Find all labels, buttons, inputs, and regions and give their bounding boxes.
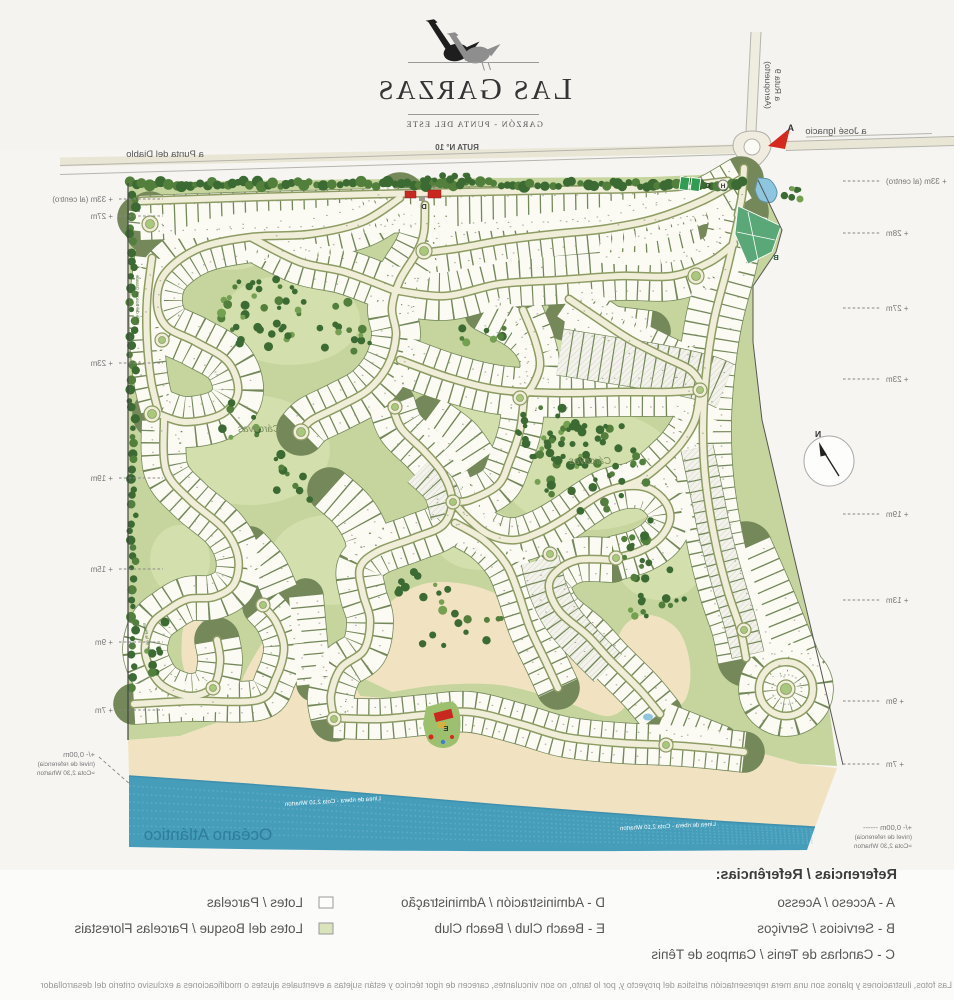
svg-text:+ 13m: + 13m xyxy=(886,596,909,605)
svg-text:E: E xyxy=(443,724,448,733)
svg-text:+ 23m: + 23m xyxy=(90,359,113,368)
svg-text:+ 28m: + 28m xyxy=(886,229,909,238)
svg-text:+ 9m: + 9m xyxy=(886,697,904,706)
svg-text:Océano Atlántico: Océano Atlántico xyxy=(144,825,273,844)
svg-text:+ 33m (al centro): + 33m (al centro) xyxy=(52,195,113,204)
svg-text:+ 27m: + 27m xyxy=(886,304,909,313)
svg-text:+ 7m: + 7m xyxy=(95,706,113,715)
svg-text:+ 33m (al centro): + 33m (al centro) xyxy=(886,177,947,186)
svg-text:(nivel de referencia): (nivel de referencia) xyxy=(855,834,912,841)
svg-text:+ 27m: + 27m xyxy=(90,212,113,221)
svg-text:+ 19m: + 19m xyxy=(886,510,909,519)
svg-text:A - Acceso / Acesso: A - Acceso / Acesso xyxy=(777,895,895,910)
svg-text:+ 23m: + 23m xyxy=(886,375,909,384)
svg-text:≈Cota 2,30 Wharton: ≈Cota 2,30 Wharton xyxy=(36,770,95,777)
svg-text:RUTA N° 10: RUTA N° 10 xyxy=(435,143,479,152)
svg-text:(nivel de referencia): (nivel de referencia) xyxy=(38,761,95,768)
svg-text:+/- 0,00m ------: +/- 0,00m ------ xyxy=(863,823,912,832)
svg-text:B - Servicios / Serviços: B - Servicios / Serviços xyxy=(757,921,895,936)
svg-text:+ 19m: + 19m xyxy=(90,474,113,483)
svg-text:≈Cota 2,30 Wharton: ≈Cota 2,30 Wharton xyxy=(853,843,912,850)
svg-text:B: B xyxy=(773,253,779,262)
svg-text:Calle del Bosque Grande: Calle del Bosque Grande xyxy=(135,274,140,325)
svg-text:D - Administración / Administr: D - Administración / Administração xyxy=(401,895,605,910)
svg-text:Cárcavas: Cárcavas xyxy=(238,424,280,435)
svg-text:H: H xyxy=(720,183,725,190)
svg-text:a Punta del Diablo: a Punta del Diablo xyxy=(126,149,204,160)
svg-text:a José Ignacio: a José Ignacio xyxy=(805,126,866,137)
svg-text:+ 9m: + 9m xyxy=(95,638,113,647)
svg-text:Las fotos, ilustraciones y pla: Las fotos, ilustraciones y planos son un… xyxy=(41,980,952,990)
svg-text:C - Canchas de Tenis / Campos: C - Canchas de Tenis / Campos de Tênis xyxy=(651,947,895,962)
svg-text:GARZÓN - PUNTA DEL ESTE: GARZÓN - PUNTA DEL ESTE xyxy=(405,119,543,129)
svg-text:C: C xyxy=(705,181,711,190)
svg-text:D: D xyxy=(421,202,427,211)
svg-text:Lotes / Parcelas: Lotes / Parcelas xyxy=(207,895,303,910)
svg-text:+ 7m: + 7m xyxy=(886,760,904,769)
svg-text:Referencias / Referências:: Referencias / Referências: xyxy=(716,867,897,883)
svg-text:A: A xyxy=(787,123,794,133)
svg-text:+/- 0,00m: +/- 0,00m xyxy=(63,750,95,759)
svg-text:E - Beach Club / Beach Club: E - Beach Club / Beach Club xyxy=(435,921,605,936)
svg-text:+ 15m: + 15m xyxy=(90,565,113,574)
svg-text:N: N xyxy=(815,429,821,439)
svg-text:Lotes del Bosque / Parcelas Fl: Lotes del Bosque / Parcelas Florestais xyxy=(74,921,303,936)
svg-text:LAS GARZAS: LAS GARZAS xyxy=(376,71,572,106)
svg-text:Cárcavas: Cárcavas xyxy=(569,456,611,467)
